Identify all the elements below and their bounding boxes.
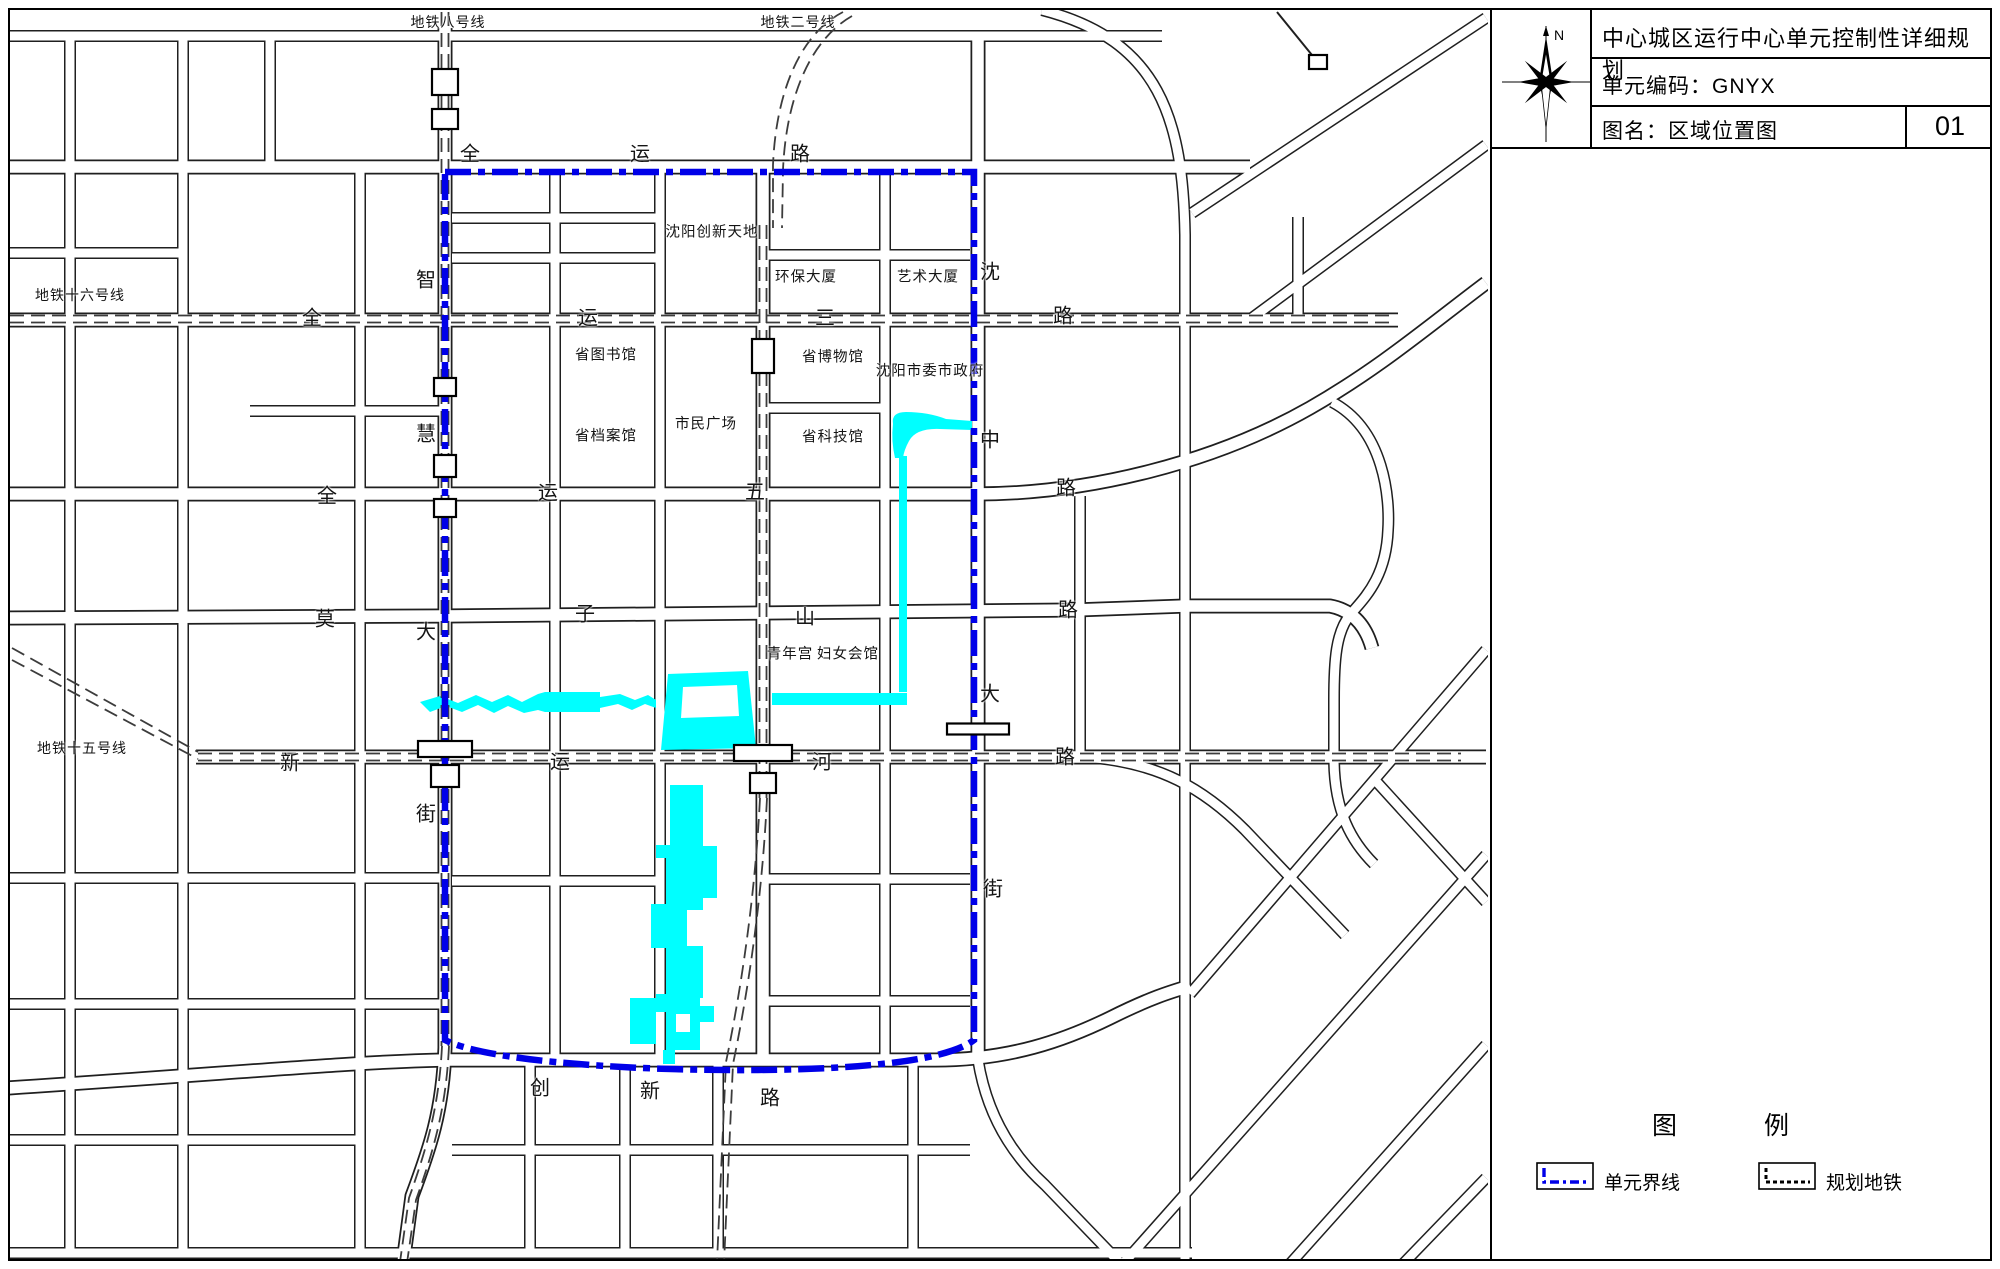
north-arrow-icon: N [1500, 18, 1592, 150]
legend-label-unit-boundary: 单元界线 [1604, 1168, 1680, 1195]
map-name: 图名：区域位置图 [1602, 115, 1778, 145]
titleblock-row-line-2 [1590, 105, 1992, 107]
legend-title-left: 图 [1652, 1106, 1677, 1142]
sheet-number-divider [1905, 105, 1907, 149]
title-panel: 中心城区运行中心单元控制性详细规划 单元编码：GNYX 图名：区域位置图 01 … [1490, 8, 1992, 1261]
planning-map-sheet: 地铁八号线地铁二号线地铁十六号线地铁十五号线全运路全运三路全运五路莫子山路新运河… [0, 0, 2000, 1269]
legend-sample-unit-boundary [1536, 1162, 1594, 1190]
legend-title-right: 例 [1764, 1106, 1789, 1142]
unit-code: 单元编码：GNYX [1602, 70, 1776, 100]
legend-sample-planned-metro [1758, 1162, 1816, 1190]
sheet-number: 01 [1935, 111, 1965, 142]
legend-label-planned-metro: 规划地铁 [1826, 1168, 1902, 1195]
north-letter: N [1554, 27, 1564, 43]
